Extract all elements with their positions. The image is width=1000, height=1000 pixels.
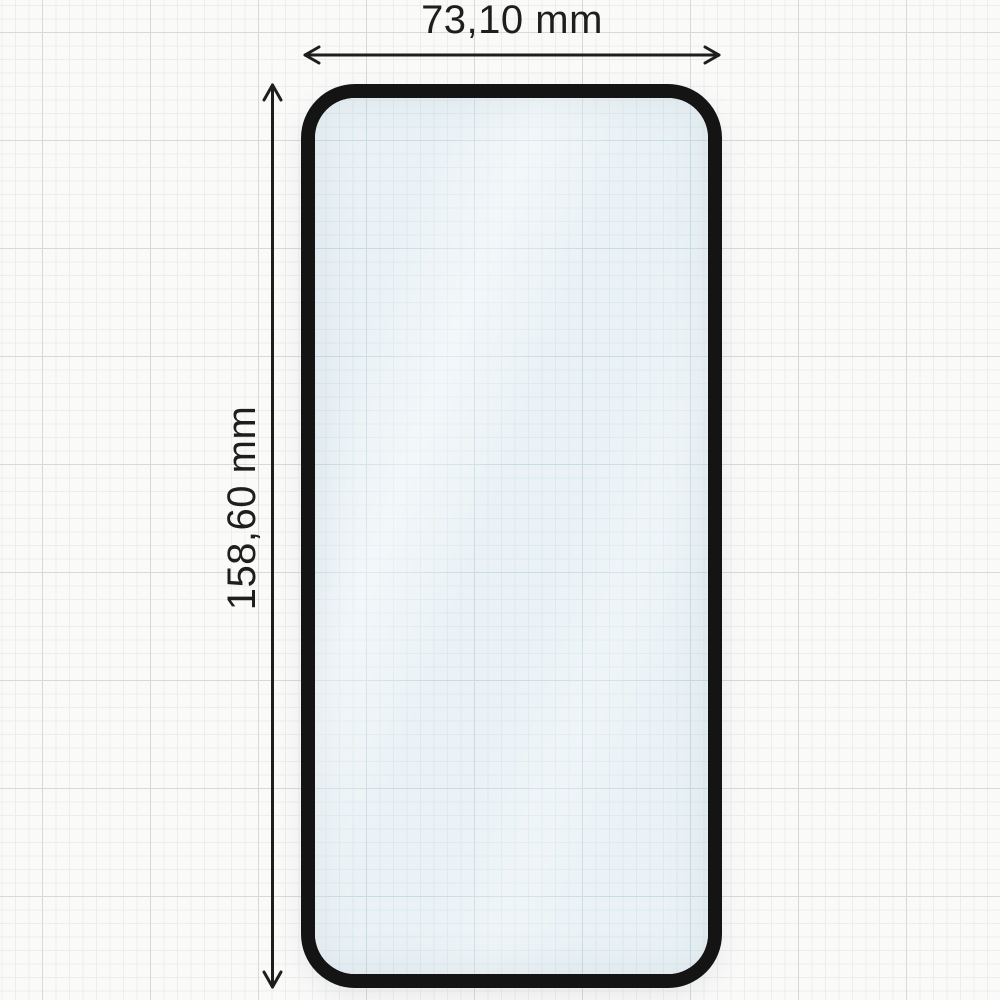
height-dimension-arrow-icon xyxy=(259,80,286,992)
width-dimension-label: 73,10 mm xyxy=(299,0,725,40)
width-dimension-arrow-icon xyxy=(299,41,725,69)
screen-protector-glass xyxy=(301,84,722,988)
glass-reflection xyxy=(315,98,708,974)
height-dimension-label: 158,60 mm xyxy=(222,406,262,611)
